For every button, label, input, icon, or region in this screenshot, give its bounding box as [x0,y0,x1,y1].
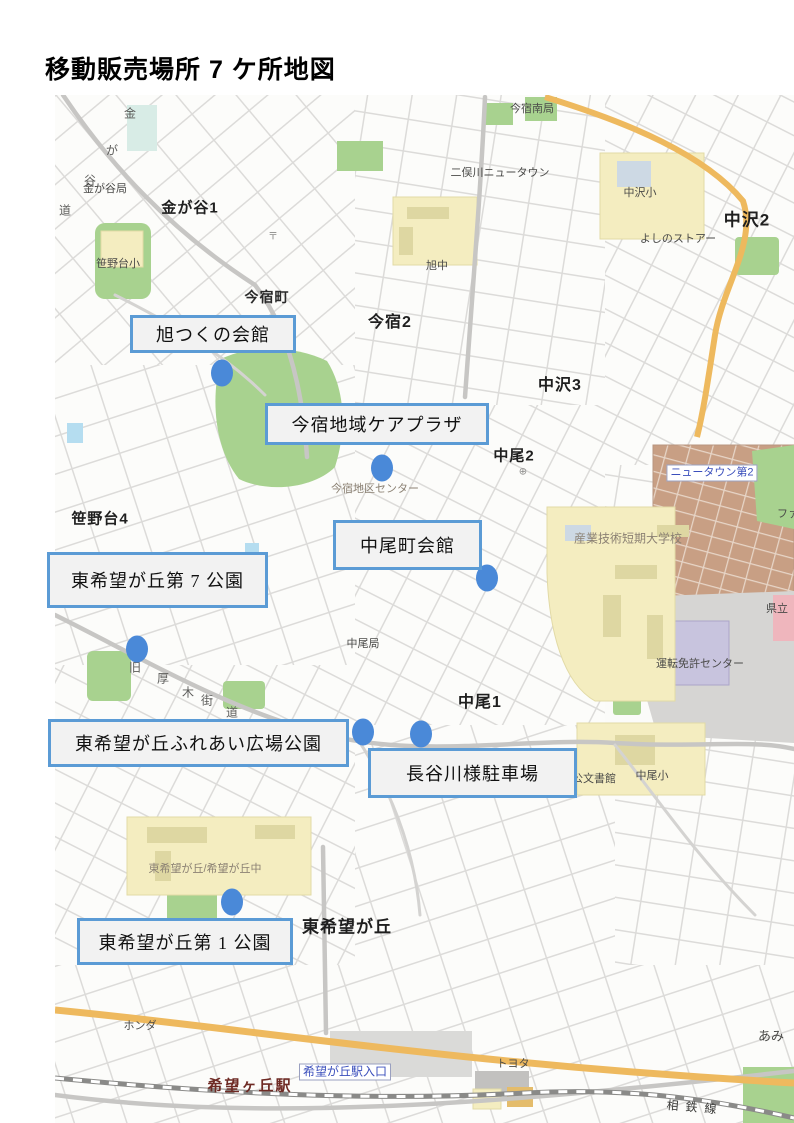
page-title: 移動販売場所 7 ケ所地図 [45,50,336,86]
map-label: 木 [182,684,194,701]
map-label: 二俣川ニュータウン [451,164,550,180]
map-label: トヨタ [497,1055,530,1071]
marker-box-1: 旭つくの会館 [130,315,296,353]
map-label: 今宿地区センター [331,480,419,496]
map-label: 笹野台4 [71,508,128,529]
map-label: 中沢2 [724,206,770,231]
marker-box-6: 長谷川様駐車場 [368,748,577,798]
map-label: 東希望が丘 [302,913,392,938]
map-label: ホンダ [124,1017,157,1033]
map-label: 希望が丘駅入口 [299,1064,391,1081]
map-label: 中尾2 [493,445,534,466]
marker-box-3: 中尾町会館 [333,520,482,570]
map-label: 公文書館 [572,770,616,786]
map-label: 笹野台小 [96,255,140,271]
map-label: 道 [226,704,238,721]
map-label: 道 [59,202,71,219]
map-overlay: 金が谷道金が谷局金が谷1〒笹野台小今宿町今宿2旭中今宿南局二俣川ニュータウン中沢… [55,95,794,1123]
map-label: 今宿2 [368,308,412,332]
map-label: 金 [124,105,136,122]
map-label: よしのストアー [640,230,716,246]
map-label: 産業技術短期大学校 [574,530,682,547]
map-label: 東希望が丘/希望が丘中 [148,860,261,876]
map-label: 〒 [268,228,278,243]
map-label: ファ [777,505,794,521]
map-label: 希望ヶ丘駅 [207,1075,292,1096]
map-label: 旭中 [426,257,448,273]
map-label: ⊕ [519,467,527,478]
marker-dot-2 [371,455,393,482]
map-label: 厚 [157,670,169,687]
marker-dot-5 [352,719,374,746]
map-label: 金が谷局 [83,180,127,196]
document-page: 移動販売場所 7 ケ所地図 [0,0,794,1123]
map-label: 相鉄線 [666,1096,724,1118]
map-label: あみ [758,1026,784,1045]
map-label: 金が谷1 [161,197,218,218]
map-label: 今宿町 [245,287,290,307]
map-label: 中尾小 [636,767,669,783]
marker-box-7: 東希望が丘第 1 公園 [77,918,293,965]
map-label: 運転免許センター [656,655,744,671]
map-label: 今宿南局 [510,100,554,116]
map-label: 中沢3 [538,371,582,395]
marker-dot-6 [410,721,432,748]
marker-dot-1 [211,360,233,387]
marker-dot-4 [126,636,148,663]
marker-box-5: 東希望が丘ふれあい広場公園 [48,719,349,767]
map-label: 街 [201,692,213,709]
map-label: が [106,142,118,159]
map-label: 中尾局 [347,635,380,651]
marker-dot-7 [221,889,243,916]
map-label: ニュータウン第2 [666,465,757,482]
map-label: 中尾1 [458,688,502,712]
map: 金が谷道金が谷局金が谷1〒笹野台小今宿町今宿2旭中今宿南局二俣川ニュータウン中沢… [55,95,794,1123]
marker-box-2: 今宿地域ケアプラザ [265,403,489,445]
map-label: 県立 [766,600,788,616]
marker-box-4: 東希望が丘第 7 公園 [47,552,268,608]
map-label: 中沢小 [624,184,657,200]
